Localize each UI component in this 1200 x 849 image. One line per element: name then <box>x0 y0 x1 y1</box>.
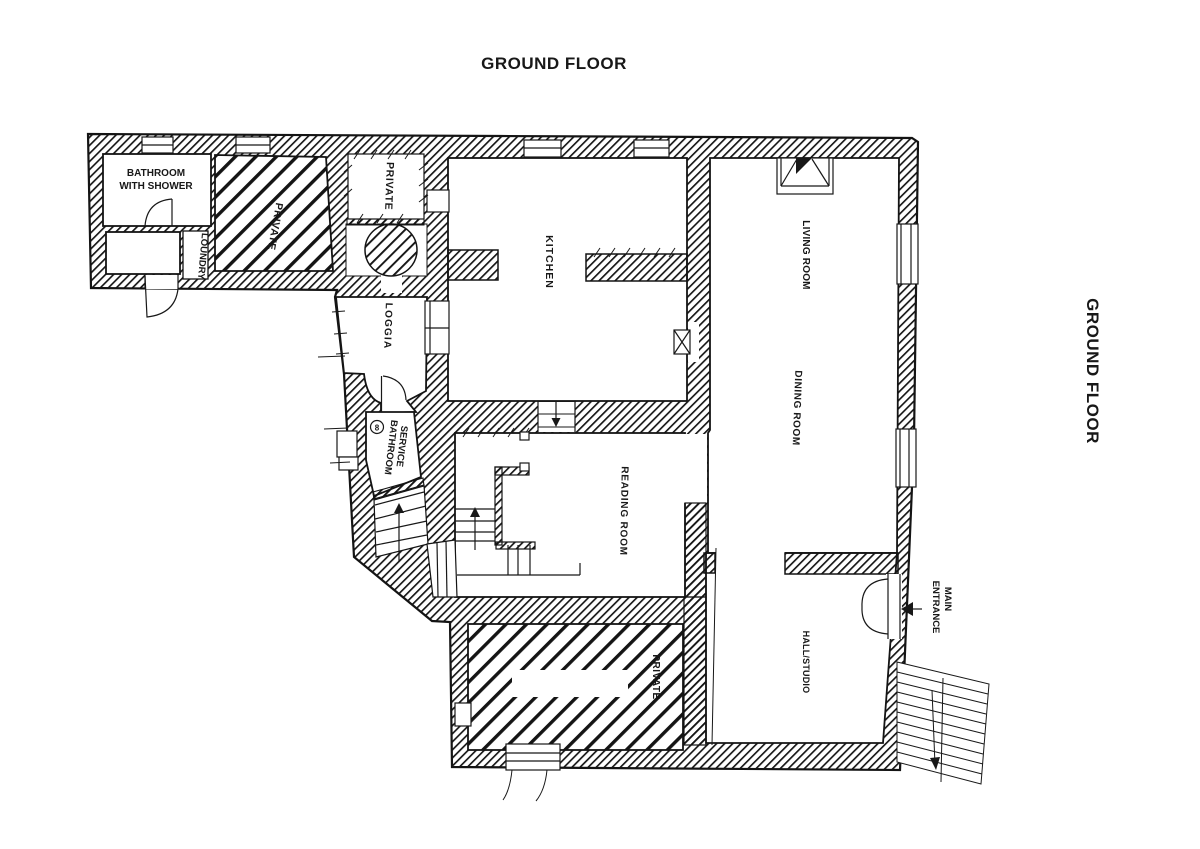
svg-text:KITCHEN: KITCHEN <box>543 235 555 289</box>
svg-text:BATHROOM: BATHROOM <box>127 168 185 179</box>
svg-text:8: 8 <box>375 424 380 433</box>
svg-text:PRIVATE: PRIVATE <box>650 654 661 699</box>
svg-text:GROUND FLOOR: GROUND FLOOR <box>1083 298 1102 444</box>
svg-text:WITH SHOWER: WITH SHOWER <box>119 181 193 192</box>
svg-text:GROUND FLOOR: GROUND FLOOR <box>481 54 627 73</box>
svg-text:MAIN: MAIN <box>942 587 953 611</box>
svg-text:ENTRANCE: ENTRANCE <box>930 581 941 634</box>
svg-text:LIVING ROOM: LIVING ROOM <box>800 220 811 289</box>
svg-text:PRIVATE: PRIVATE <box>382 162 396 211</box>
svg-text:LOGGIA: LOGGIA <box>381 303 394 350</box>
svg-text:READING ROOM: READING ROOM <box>617 466 630 556</box>
svg-text:HALL/STUDIO: HALL/STUDIO <box>801 631 811 694</box>
